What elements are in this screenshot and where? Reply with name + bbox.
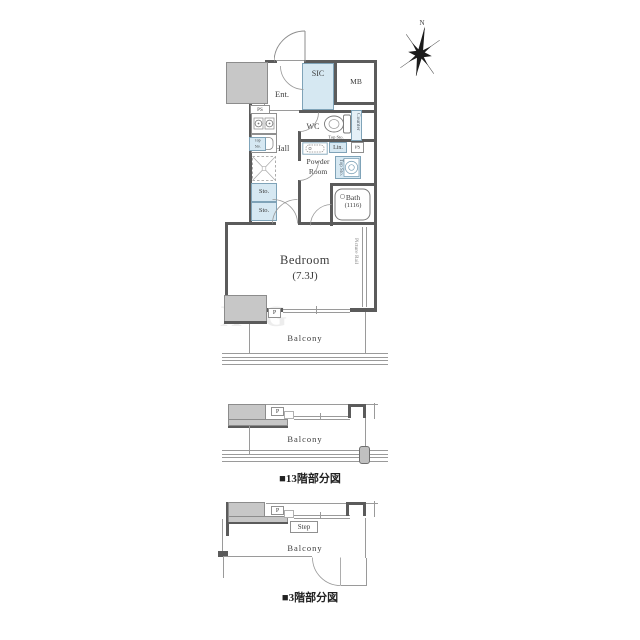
toilet-icon	[322, 112, 352, 136]
entry-step-line	[266, 110, 299, 111]
wall	[363, 404, 366, 418]
window-line	[294, 518, 350, 519]
top-sto-line1: Top	[255, 139, 261, 143]
wall	[363, 502, 366, 516]
line	[365, 518, 366, 558]
floor3-caption: ■3階部分図	[240, 590, 380, 604]
wall	[348, 404, 351, 418]
washer-top-sto-label: Top Sto.	[338, 159, 343, 176]
window-tick	[320, 512, 321, 519]
floor-plan-canvas: XG N PS SIC	[0, 0, 640, 640]
powder-door-arc	[299, 160, 319, 181]
bath-size-label: (1116)	[338, 202, 368, 211]
wall	[350, 308, 377, 312]
wall	[298, 180, 301, 224]
bedroom-label: Bedroom	[240, 252, 370, 268]
line	[374, 501, 375, 517]
mb-label: MB	[337, 76, 375, 88]
sic-label: SIC	[302, 68, 334, 80]
wall	[346, 502, 349, 516]
wall	[224, 321, 267, 324]
line	[366, 558, 367, 586]
step-label: Step	[290, 521, 318, 533]
wc-door-arc	[299, 112, 319, 132]
wall	[228, 522, 288, 524]
sink-top-sto-box: Top Sto.	[249, 137, 266, 151]
counter-label: Counter	[355, 113, 361, 131]
railing-line	[222, 360, 388, 361]
wall	[228, 426, 288, 428]
ent-label: Ent.	[262, 88, 302, 100]
pillar	[224, 295, 267, 322]
line	[341, 585, 367, 586]
balcony-label: Balcony	[250, 433, 360, 445]
bath-door-arc	[310, 204, 332, 226]
lin-box: Lin.	[329, 142, 347, 153]
line	[365, 312, 366, 354]
top-sto-line2: Sto.	[255, 145, 261, 149]
sto-label: Sto.	[259, 189, 269, 196]
compass-north-label: N	[416, 18, 428, 28]
p-label: P	[271, 407, 284, 416]
balcony-label: Balcony	[250, 542, 360, 554]
wall	[330, 183, 377, 186]
picture-rail-label: Picture Rail	[353, 238, 359, 264]
wall	[225, 222, 252, 225]
balcony-label: Balcony	[240, 332, 370, 344]
line	[249, 324, 250, 354]
step-outline	[284, 510, 294, 518]
washbasin-icon	[302, 142, 328, 155]
line	[223, 557, 224, 578]
refrigerator-space-icon	[251, 155, 277, 182]
slab	[228, 419, 288, 426]
window-line	[294, 515, 350, 516]
window-tick	[320, 413, 321, 420]
p-label: P	[271, 506, 284, 515]
line	[374, 403, 375, 419]
bedroom-size-label: (7.3J)	[240, 269, 370, 283]
wall	[374, 60, 377, 312]
window-line	[294, 419, 350, 420]
floor13-caption: ■13階部分図	[240, 471, 380, 485]
balcony-door-arc	[312, 557, 342, 586]
window-tick	[316, 306, 317, 314]
sic-door-arc	[280, 65, 304, 90]
step-outline	[284, 411, 294, 419]
railing-line	[222, 364, 388, 365]
railing-line	[222, 357, 388, 358]
railing-line	[222, 353, 388, 354]
entrance-door-arc	[274, 30, 306, 63]
p-label: P	[268, 308, 281, 318]
line	[223, 556, 312, 557]
sto-label: Sto.	[259, 208, 269, 215]
ps-label: PS	[352, 143, 362, 152]
bedroom-door-arcs	[272, 199, 298, 224]
wall	[334, 102, 377, 105]
toilet-top-sto-label: Top Sto.	[326, 135, 347, 140]
stove-burners-icon	[251, 113, 277, 134]
lin-label: Lin.	[333, 145, 343, 151]
window-line	[294, 416, 350, 417]
compass-icon	[394, 24, 446, 80]
balcony-pillar	[359, 446, 370, 464]
